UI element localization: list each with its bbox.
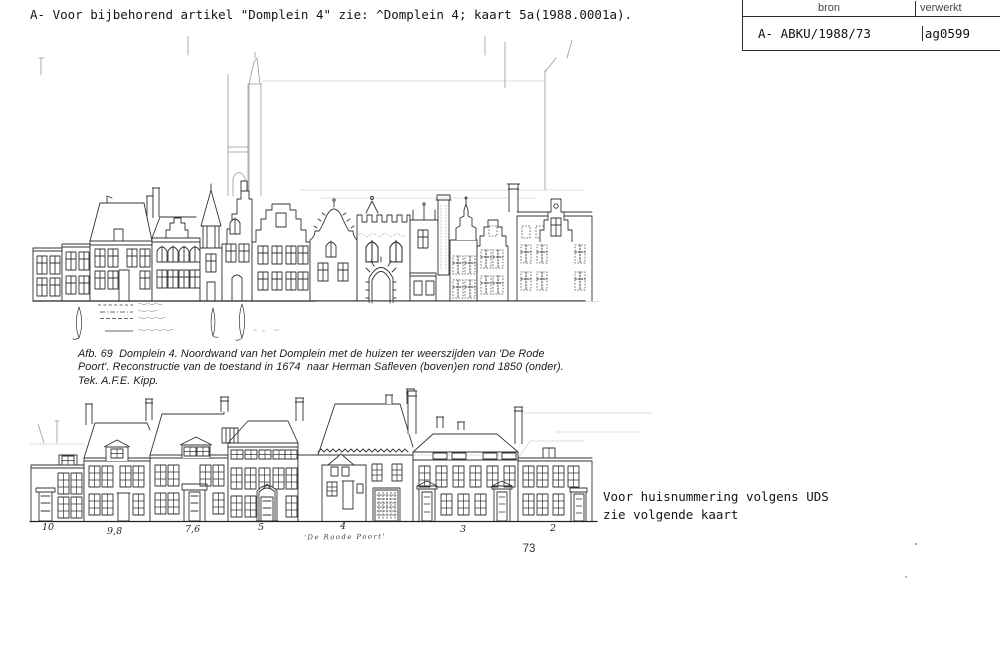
house-number-2: 2: [550, 523, 556, 534]
bron-value: A- ABKU/1988/73: [743, 26, 922, 41]
register-table-row: A- ABKU/1988/73 ag0599: [743, 17, 1000, 50]
legend-sketch: [98, 303, 174, 331]
dom-tower-sketch: [39, 36, 585, 198]
house-number-10: 10: [42, 522, 54, 533]
caption-line-1: Afb. 69 Domplein 4. Noordwand van het Do…: [78, 348, 545, 360]
scan-speck: [905, 576, 907, 578]
header-note: A- Voor bijbehorend artikel "Domplein 4"…: [30, 7, 632, 22]
caption-line-2: Poort'. Reconstructie van de toestand in…: [78, 361, 564, 373]
side-note: Voor huisnummering volgens UDSzie volgen…: [603, 488, 829, 523]
page-number: 73: [512, 543, 546, 555]
elevation-1674-drawing: [25, 30, 605, 350]
facade-row-1674: [33, 181, 600, 303]
house-number-5: 5: [258, 522, 264, 533]
facade-row-1850: [30, 389, 597, 522]
gate-label-de-roode-poort: 'De Roode Poort': [293, 532, 397, 541]
house-number-3: 3: [460, 524, 466, 535]
register-table: bron verwerkt A- ABKU/1988/73 ag0599: [742, 0, 1000, 51]
side-note-line-1: Voor huisnummering volgens UDS: [603, 489, 829, 504]
verwerkt-value: ag0599: [922, 26, 1000, 41]
column-header-bron: bron: [743, 1, 915, 16]
column-header-verwerkt: verwerkt: [915, 1, 1000, 16]
tree-sketches: [73, 304, 279, 340]
side-note-line-2: zie volgende kaart: [603, 507, 738, 522]
elevation-1850-drawing: [25, 385, 665, 535]
scan-speck: [915, 543, 917, 545]
house-number-7-6: 7,6: [185, 524, 200, 535]
scanned-document-page: A- Voor bijbehorend artikel "Domplein 4"…: [0, 0, 1000, 649]
house-number-9-8: 9,8: [107, 526, 122, 537]
figure-caption: Afb. 69 Domplein 4. Noordwand van het Do…: [78, 348, 564, 388]
register-table-header: bron verwerkt: [743, 0, 1000, 17]
house-number-4: 4: [340, 521, 346, 532]
